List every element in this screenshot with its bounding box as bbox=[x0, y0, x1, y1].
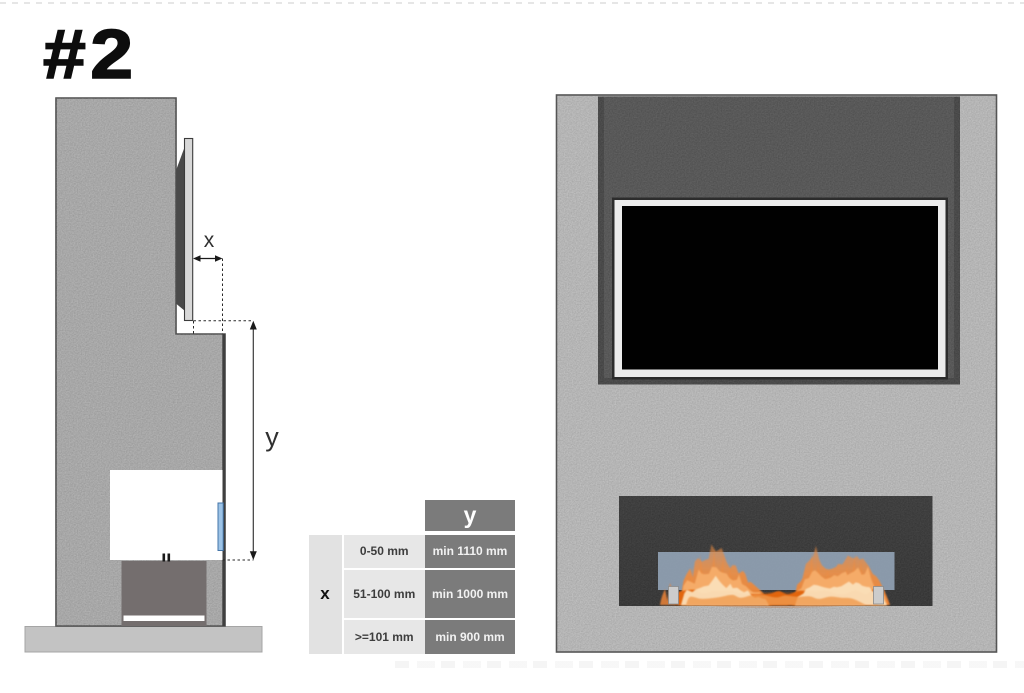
svg-text:y: y bbox=[265, 422, 279, 452]
svg-text:x: x bbox=[204, 229, 215, 252]
